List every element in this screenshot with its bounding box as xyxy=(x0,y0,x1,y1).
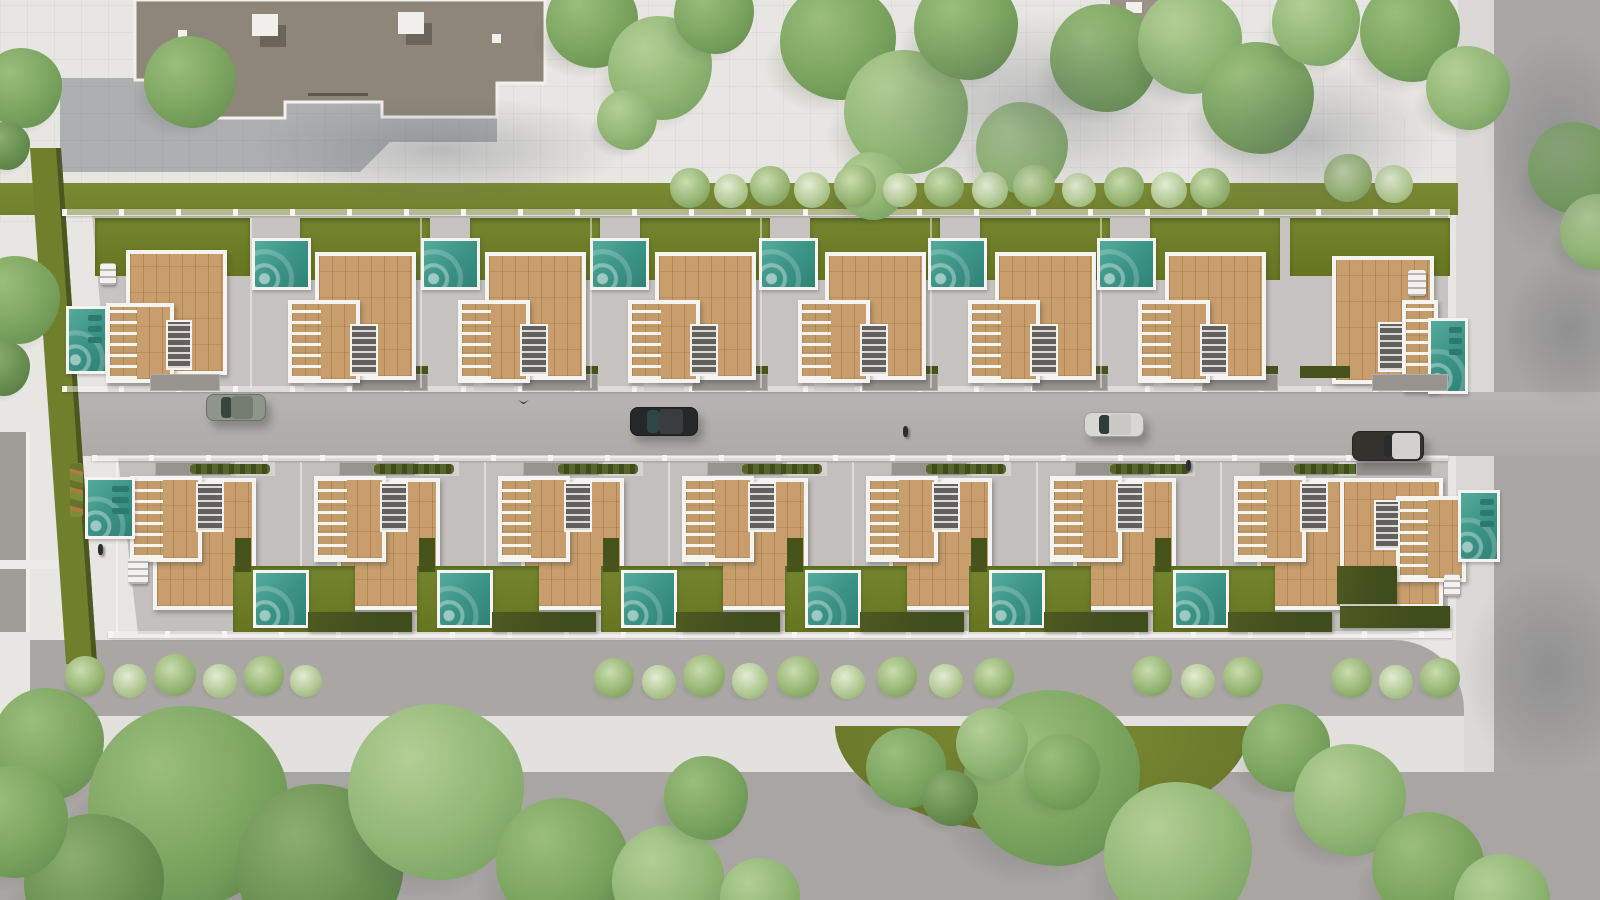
driveway xyxy=(150,374,220,391)
roof-skylight xyxy=(398,12,424,34)
secondary-roof-deck xyxy=(682,476,754,562)
pergola-slats xyxy=(1238,480,1267,558)
tree xyxy=(144,36,236,128)
tree xyxy=(956,708,1028,780)
garden-bed xyxy=(1340,606,1450,628)
plunge-pool xyxy=(805,570,861,628)
shrub xyxy=(1379,665,1413,699)
patio-table xyxy=(1408,270,1426,296)
cast-shadow xyxy=(250,95,630,205)
pedestrian xyxy=(903,426,908,437)
hedge xyxy=(1155,538,1171,572)
plunge-pool xyxy=(252,238,311,290)
plunge-pool xyxy=(989,570,1045,628)
shrub xyxy=(1181,664,1215,698)
shrub xyxy=(290,665,322,697)
plunge-pool xyxy=(85,477,135,539)
shrub xyxy=(594,658,634,698)
silver-green-car xyxy=(206,394,266,421)
hedge xyxy=(971,538,987,572)
roof-stairs xyxy=(1300,482,1328,532)
pool-step xyxy=(88,337,102,343)
cast-shadow xyxy=(1480,30,1600,270)
pool-step xyxy=(112,497,129,503)
shrub xyxy=(203,664,237,698)
roof-stairs xyxy=(350,324,378,376)
pergola-slats xyxy=(1142,304,1171,379)
pickup-truck xyxy=(1352,431,1424,461)
fence-south-bottom xyxy=(108,631,1452,638)
plunge-pool xyxy=(253,570,309,628)
tree xyxy=(664,756,748,840)
garden-bed xyxy=(492,612,596,632)
car-roof xyxy=(231,396,253,419)
garden-bed xyxy=(860,612,964,632)
fence-south-top xyxy=(92,455,1448,461)
shrub xyxy=(642,665,676,699)
plunge-pool xyxy=(928,238,987,290)
neighbor-parapet xyxy=(0,560,58,569)
shrub xyxy=(113,664,147,698)
roof-stairs xyxy=(196,482,224,532)
pool-step xyxy=(88,326,102,332)
roof-vent xyxy=(492,34,501,43)
roof-stairs xyxy=(748,482,776,532)
planter-box xyxy=(70,463,83,517)
front-hedge xyxy=(926,464,1006,474)
roof-stairs xyxy=(1116,482,1144,532)
pergola-slats xyxy=(870,480,899,558)
white-car xyxy=(1084,412,1144,437)
driveway xyxy=(1372,374,1448,391)
pergola-slats xyxy=(802,304,831,379)
shrub xyxy=(929,664,963,698)
roof-stairs xyxy=(1378,322,1404,372)
hedge xyxy=(603,538,619,572)
roof-stairs xyxy=(860,324,888,376)
shrub xyxy=(714,174,748,208)
plunge-pool xyxy=(1173,570,1229,628)
pergola-slats xyxy=(502,480,531,558)
secondary-roof-deck xyxy=(314,476,386,562)
pergola-slats xyxy=(462,304,491,379)
shrub xyxy=(794,172,830,208)
black-suv xyxy=(630,407,698,436)
secondary-roof-deck xyxy=(1396,496,1466,582)
shrub xyxy=(683,655,725,697)
plunge-pool xyxy=(759,238,818,290)
pool-step xyxy=(1480,510,1494,516)
pedestrian xyxy=(98,544,103,555)
aerial-site-plan: Aerial 3D architectural rendering of a r… xyxy=(0,0,1600,900)
car-roof xyxy=(1109,414,1131,435)
secondary-roof-deck xyxy=(1050,476,1122,562)
windshield xyxy=(221,397,232,418)
tree xyxy=(1024,734,1100,810)
front-hedge xyxy=(374,464,454,474)
garden-bed xyxy=(1228,612,1332,632)
pergola-slats xyxy=(1054,480,1083,558)
shrub xyxy=(1332,658,1372,698)
plunge-pool xyxy=(1097,238,1156,290)
roof-stairs xyxy=(932,482,960,532)
garden-bed xyxy=(676,612,780,632)
cast-shadow xyxy=(1180,60,1440,220)
roof-stairs xyxy=(520,324,548,376)
garden-bed xyxy=(308,612,412,632)
front-hedge xyxy=(558,464,638,474)
cast-shadow xyxy=(860,10,1220,200)
roof-stairs xyxy=(166,320,192,370)
front-hedge xyxy=(190,464,270,474)
plunge-pool xyxy=(66,306,108,374)
patio-table xyxy=(1444,574,1460,596)
hedge xyxy=(1300,366,1350,378)
hedge xyxy=(787,538,803,572)
pergola-slats xyxy=(134,480,163,558)
shrub xyxy=(732,663,768,699)
roof-stairs xyxy=(1030,324,1058,376)
hedge xyxy=(419,538,435,572)
roof-stairs xyxy=(564,482,592,532)
pool-step xyxy=(112,508,129,514)
plunge-pool xyxy=(621,570,677,628)
pergola-slats xyxy=(292,304,321,379)
pergola-slats xyxy=(972,304,1001,379)
pergola-slats xyxy=(632,304,661,379)
pergola-slats xyxy=(686,480,715,558)
plunge-pool xyxy=(437,570,493,628)
shrub xyxy=(154,654,196,696)
windshield xyxy=(1099,415,1110,434)
patio-table xyxy=(128,558,148,584)
garden-bed xyxy=(1337,566,1397,604)
windshield xyxy=(647,410,659,432)
front-hedge xyxy=(1110,464,1190,474)
plunge-pool xyxy=(1458,490,1500,562)
driveway xyxy=(1356,462,1432,476)
pool-step xyxy=(1480,521,1494,527)
tree xyxy=(922,770,978,826)
shrub xyxy=(1420,658,1460,698)
secondary-roof-deck xyxy=(866,476,938,562)
shrub xyxy=(1223,657,1263,697)
shrub xyxy=(974,658,1014,698)
pool-step xyxy=(1449,349,1462,355)
pool-step xyxy=(1480,499,1494,505)
pool-step xyxy=(1449,338,1462,344)
secondary-roof-deck xyxy=(130,476,202,562)
plunge-pool xyxy=(590,238,649,290)
pool-step xyxy=(112,486,129,492)
pergola-slats xyxy=(110,307,137,379)
cast-shadow xyxy=(1500,250,1600,410)
roof-stairs xyxy=(380,482,408,532)
secondary-roof-deck xyxy=(498,476,570,562)
hedge xyxy=(235,538,251,572)
plunge-pool xyxy=(421,238,480,290)
roof-stairs xyxy=(1200,324,1228,376)
pergola-slats xyxy=(1400,500,1428,578)
roof-skylight xyxy=(252,14,278,36)
pool-step xyxy=(88,315,102,321)
pergola-slats xyxy=(318,480,347,558)
patio-table xyxy=(100,263,116,285)
cast-shadow xyxy=(1460,560,1600,780)
roof-stairs xyxy=(1374,500,1400,550)
shrub xyxy=(877,657,917,697)
shrub xyxy=(750,166,790,206)
shrub xyxy=(831,665,865,699)
pool-step xyxy=(1449,327,1462,333)
car-roof xyxy=(1392,433,1421,458)
car-roof xyxy=(659,409,683,433)
garden-bed xyxy=(1044,612,1148,632)
neighbor-building xyxy=(0,432,30,632)
shrub xyxy=(670,168,710,208)
shrub xyxy=(65,656,105,696)
front-hedge xyxy=(742,464,822,474)
secondary-roof-deck xyxy=(1234,476,1306,562)
roof-stairs xyxy=(690,324,718,376)
secondary-roof-deck xyxy=(106,303,174,383)
shrub xyxy=(1132,656,1172,696)
shrub xyxy=(244,656,284,696)
shrub xyxy=(777,656,819,698)
pedestrian xyxy=(1186,460,1191,471)
